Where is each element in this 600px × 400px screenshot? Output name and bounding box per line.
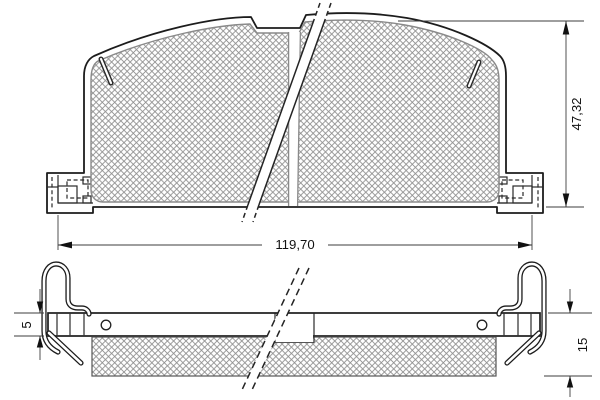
drawing-canvas: 119,70 47,32 5 15 xyxy=(0,0,600,400)
dim-plate-thickness-label: 5 xyxy=(19,321,34,328)
dim-overall-height-label: 47,32 xyxy=(569,97,584,130)
rivet-hole-left xyxy=(101,320,111,330)
rivet-hole-right xyxy=(477,320,487,330)
dim-overall-width-label: 119,70 xyxy=(275,237,314,252)
dim-total-thickness-label: 15 xyxy=(575,338,590,353)
brake-pad-technical-drawing: 119,70 47,32 5 15 xyxy=(0,0,600,400)
